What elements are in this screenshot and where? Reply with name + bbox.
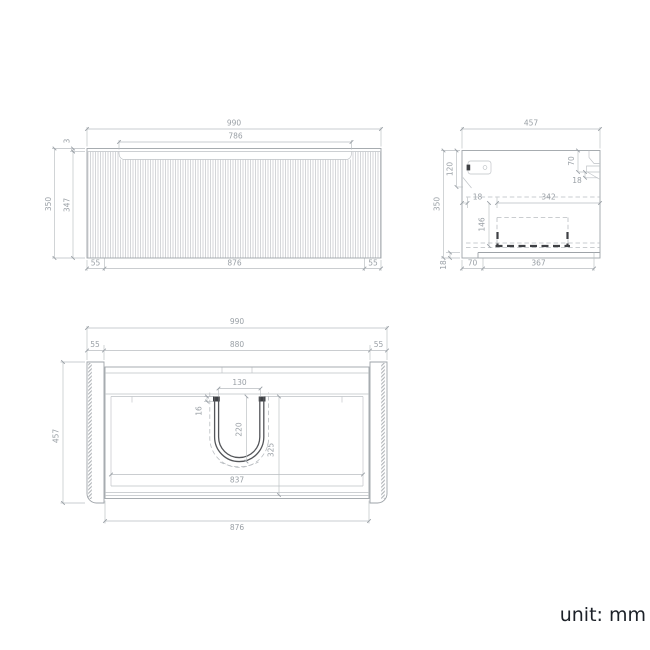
dim-front-left-gap: 55 bbox=[91, 259, 101, 268]
dim-plan-cavity-width: 837 bbox=[230, 476, 245, 485]
dim-plan-cutout-width: 130 bbox=[232, 378, 247, 387]
dim-side-hanger-drop: 120 bbox=[446, 162, 455, 177]
dim-plan-total-depth: 457 bbox=[52, 429, 61, 444]
front-flutes-center bbox=[119, 160, 352, 259]
dim-side-total-height: 350 bbox=[433, 197, 442, 212]
dim-side-bottom-thickness: 18 bbox=[439, 260, 448, 270]
bracket-leader bbox=[463, 178, 472, 189]
dim-side-toe-depth: 70 bbox=[468, 259, 478, 268]
dim-front-top-lip: 3 bbox=[63, 138, 72, 143]
side-view: 457 350 120 70 18 18 342 146 18 bbox=[433, 119, 601, 272]
front-flutes-right bbox=[352, 152, 382, 258]
dim-plan-right-panel: 55 bbox=[374, 340, 384, 349]
dim-side-cleat-thickness: 18 bbox=[572, 176, 582, 185]
dim-side-drawer-height: 146 bbox=[478, 217, 487, 232]
dim-front-total-width: 990 bbox=[227, 119, 242, 128]
dim-side-drawer-depth: 342 bbox=[541, 193, 556, 202]
dim-plan-left-panel: 55 bbox=[90, 340, 100, 349]
dim-plan-inner-width: 880 bbox=[230, 340, 245, 349]
front-view: 990 786 350 347 3 55 876 55 bbox=[44, 119, 381, 272]
drawing-page: 990 786 350 347 3 55 876 55 bbox=[0, 0, 650, 650]
dim-front-recess-width: 786 bbox=[228, 132, 243, 141]
dim-side-base-depth: 367 bbox=[531, 259, 546, 268]
bracket-hook bbox=[467, 165, 471, 171]
front-recess-outline bbox=[119, 152, 352, 160]
front-flutes-left bbox=[88, 152, 119, 258]
dim-front-carcass-width: 876 bbox=[227, 259, 242, 268]
plan-right-panel-hatch bbox=[381, 363, 385, 499]
drawer-hidden-outline bbox=[497, 218, 568, 247]
dim-plan-cutout-depth: 220 bbox=[235, 422, 244, 437]
dim-side-front-thickness: 18 bbox=[473, 193, 483, 202]
bracket-hole bbox=[483, 166, 487, 170]
cleat-profile-upper bbox=[589, 151, 600, 164]
dim-plan-cutout-lip: 16 bbox=[195, 406, 204, 416]
dim-plan-cutout-span: 325 bbox=[267, 443, 276, 458]
plan-left-panel-hatch bbox=[88, 363, 92, 499]
unit-note: unit: mm bbox=[546, 604, 646, 626]
plan-cavity-outline bbox=[111, 397, 363, 487]
dim-side-total-depth: 457 bbox=[524, 119, 539, 128]
bottom-panel-line bbox=[478, 253, 600, 259]
dim-plan-carcass-width: 876 bbox=[230, 523, 245, 532]
dim-front-panel-height: 347 bbox=[63, 198, 72, 213]
dim-front-total-height: 350 bbox=[44, 197, 53, 212]
dim-plan-total-width: 990 bbox=[230, 317, 245, 326]
technical-drawing: 990 786 350 347 3 55 876 55 bbox=[0, 0, 650, 650]
side-body-outline bbox=[462, 151, 600, 259]
hanging-bracket bbox=[468, 161, 491, 174]
dim-front-right-gap: 55 bbox=[368, 259, 378, 268]
plan-view: 990 55 880 55 457 130 16 220 325 837 bbox=[52, 317, 388, 532]
dim-side-cleat-height: 70 bbox=[567, 156, 576, 166]
